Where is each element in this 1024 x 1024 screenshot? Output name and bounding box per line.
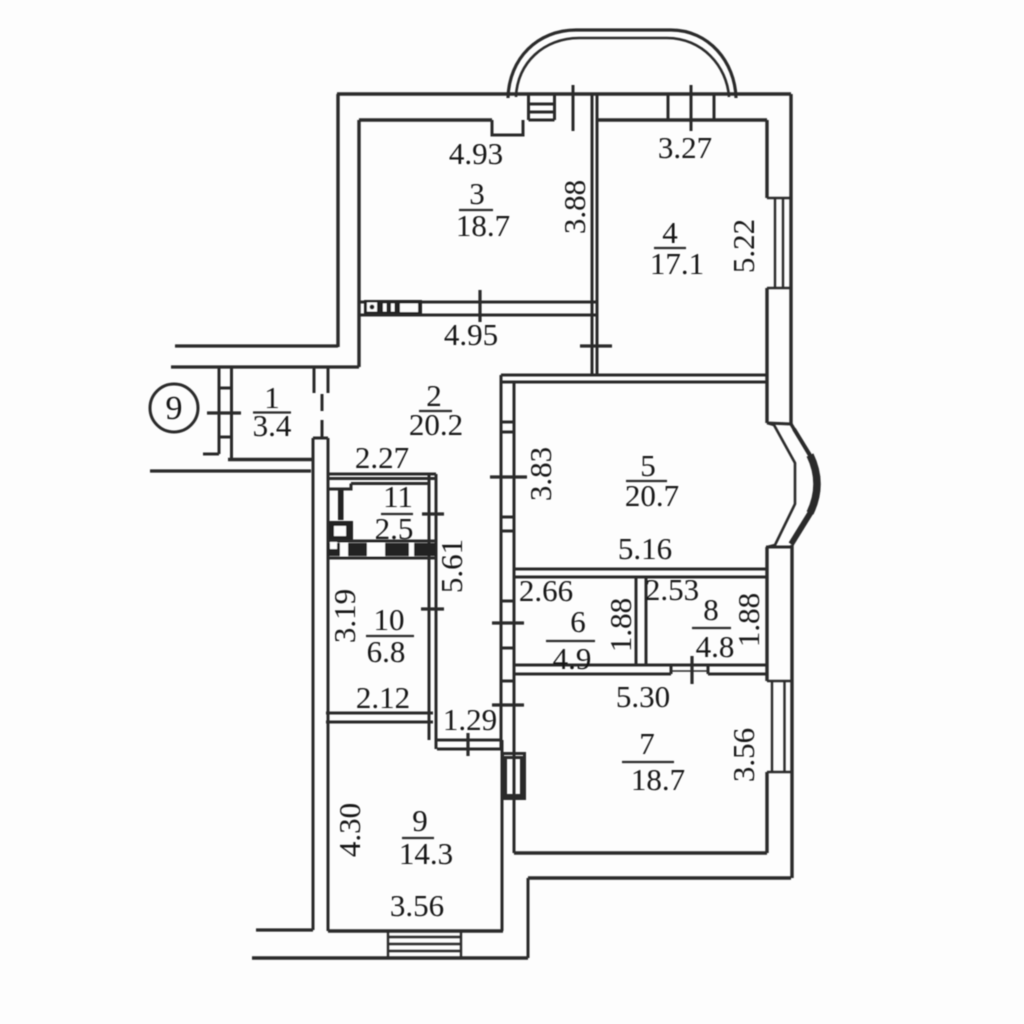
svg-text:2.53: 2.53 bbox=[645, 572, 699, 607]
svg-text:3.56: 3.56 bbox=[390, 888, 444, 923]
svg-text:18.7: 18.7 bbox=[631, 762, 685, 797]
svg-text:5.22: 5.22 bbox=[726, 219, 761, 273]
svg-text:3.83: 3.83 bbox=[523, 447, 558, 501]
svg-text:14.3: 14.3 bbox=[399, 836, 453, 871]
svg-text:20.7: 20.7 bbox=[625, 478, 679, 513]
svg-text:6: 6 bbox=[570, 604, 586, 639]
svg-text:2.5: 2.5 bbox=[375, 511, 414, 546]
svg-text:10: 10 bbox=[374, 602, 405, 637]
svg-text:4.30: 4.30 bbox=[332, 803, 367, 857]
svg-text:4.95: 4.95 bbox=[444, 317, 498, 352]
svg-text:2.12: 2.12 bbox=[356, 680, 410, 715]
svg-text:9: 9 bbox=[412, 803, 428, 838]
svg-text:3: 3 bbox=[469, 176, 485, 211]
svg-text:1.88: 1.88 bbox=[603, 598, 638, 652]
svg-text:4.93: 4.93 bbox=[449, 136, 503, 171]
svg-text:7: 7 bbox=[639, 726, 655, 761]
svg-text:4.9: 4.9 bbox=[553, 641, 592, 676]
svg-text:2.66: 2.66 bbox=[519, 573, 573, 608]
svg-text:5.61: 5.61 bbox=[434, 539, 469, 593]
svg-text:3.19: 3.19 bbox=[327, 589, 362, 643]
svg-text:9: 9 bbox=[166, 390, 183, 427]
svg-text:5.30: 5.30 bbox=[616, 679, 670, 714]
svg-text:3.56: 3.56 bbox=[726, 728, 761, 782]
svg-text:1.88: 1.88 bbox=[731, 593, 766, 647]
svg-text:4: 4 bbox=[662, 215, 678, 250]
svg-text:8: 8 bbox=[703, 592, 719, 627]
svg-text:4.8: 4.8 bbox=[696, 629, 735, 664]
svg-text:3.88: 3.88 bbox=[557, 180, 592, 234]
svg-text:5.16: 5.16 bbox=[618, 531, 672, 566]
svg-text:3.27: 3.27 bbox=[658, 130, 712, 165]
svg-text:17.1: 17.1 bbox=[650, 246, 704, 281]
svg-text:1.29: 1.29 bbox=[443, 702, 497, 737]
svg-text:18.7: 18.7 bbox=[456, 208, 510, 243]
svg-text:20.2: 20.2 bbox=[409, 407, 463, 442]
svg-text:11: 11 bbox=[383, 479, 413, 514]
svg-text:2.27: 2.27 bbox=[355, 440, 409, 475]
svg-text:6.8: 6.8 bbox=[367, 634, 406, 669]
